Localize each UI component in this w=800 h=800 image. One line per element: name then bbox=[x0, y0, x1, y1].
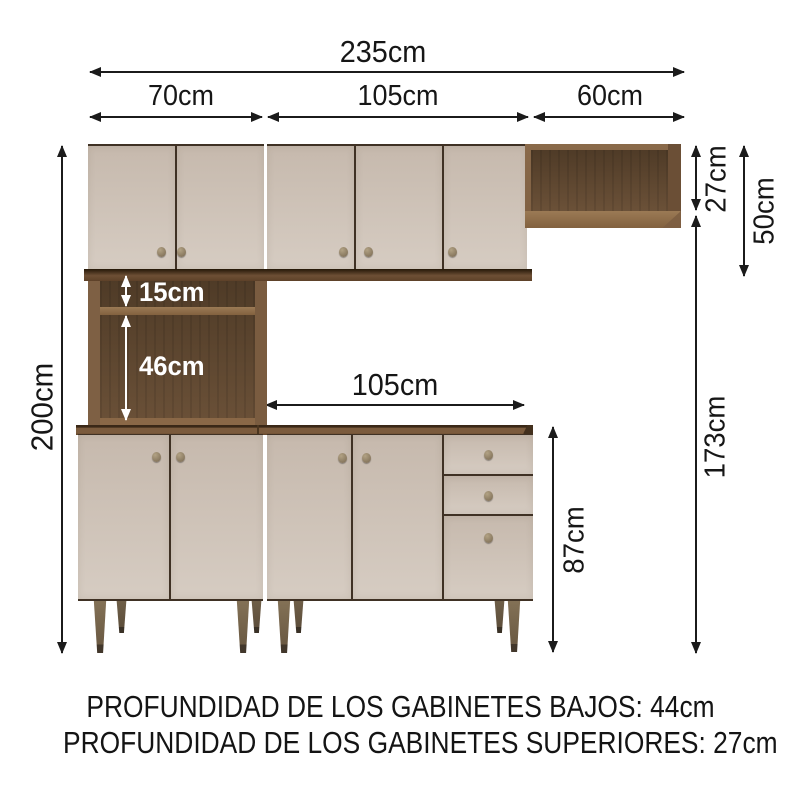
footer-depth-note-lower: PROFUNDIDAD DE LOS GABINETES BAJOS: 44cm bbox=[0, 690, 800, 724]
dimension-arrow-wall-shelf-height bbox=[695, 146, 697, 210]
upper-middle-cabinet-bottom-board bbox=[266, 269, 532, 281]
dimension-label-wall-shelf-width: 60cm bbox=[564, 82, 657, 111]
cabinet-leg bbox=[277, 601, 291, 653]
dimension-arrow-base-cabinet-height bbox=[552, 427, 554, 652]
hutch-right-panel bbox=[255, 281, 267, 426]
cabinet-leg bbox=[116, 601, 127, 633]
cabinet-leg bbox=[494, 601, 505, 633]
drawer-knob bbox=[484, 491, 493, 501]
door-knob bbox=[448, 247, 457, 257]
door-knob bbox=[338, 453, 347, 463]
wall-open-shelf bbox=[525, 144, 681, 228]
wall-open-shelf-side-panel bbox=[668, 144, 681, 212]
dimension-label-base-cabinet-height: 87cm bbox=[561, 506, 590, 573]
cabinet-leg bbox=[93, 601, 107, 653]
dimension-label-upper-cabinet-height: 50cm bbox=[751, 177, 780, 244]
dimension-label-total-height: 200cm bbox=[27, 363, 58, 451]
upper-middle-cabinet bbox=[267, 144, 527, 269]
base-left-cabinet-door-right bbox=[171, 435, 263, 599]
door-knob bbox=[362, 453, 371, 463]
door-knob bbox=[157, 247, 166, 257]
kitchen-cabinet-dimension-diagram: 235cm 70cm 105cm 60cm 200cm 27cm 50cm 17… bbox=[0, 0, 800, 800]
hutch-left-panel bbox=[88, 281, 100, 426]
dimension-arrow-total-height bbox=[61, 146, 63, 653]
upper-left-cabinet-door-right bbox=[177, 146, 264, 269]
dimension-arrow-total-width bbox=[90, 71, 684, 73]
dimension-label-upper-middle-width: 105cm bbox=[350, 82, 447, 111]
hutch-shelf-board bbox=[100, 307, 255, 315]
dimension-arrow-wall-shelf-to-floor bbox=[695, 216, 697, 653]
drawer-knob bbox=[484, 450, 493, 460]
door-knob bbox=[364, 247, 373, 257]
dimension-label-niche-upper: 15cm bbox=[139, 279, 205, 306]
dimension-label-counter-width: 105cm bbox=[347, 369, 444, 400]
door-knob bbox=[152, 452, 161, 462]
base-left-cabinet bbox=[78, 434, 263, 601]
drawer-knob bbox=[484, 533, 493, 543]
dimension-arrow-niche-lower bbox=[125, 316, 127, 420]
cabinet-leg bbox=[236, 601, 250, 653]
dimension-arrow-upper-cabinet-height bbox=[743, 146, 745, 276]
door-knob bbox=[339, 247, 348, 257]
dimension-label-upper-left-width: 70cm bbox=[135, 82, 228, 111]
footer-depth-note-lower-text: PROFUNDIDAD DE LOS GABINETES BAJOS: 44cm bbox=[86, 690, 714, 724]
dimension-arrow-wall-shelf-width bbox=[534, 116, 684, 118]
door-knob bbox=[176, 452, 185, 462]
dimension-arrow-counter-width bbox=[266, 404, 524, 406]
dimension-arrow-upper-left-width bbox=[90, 116, 262, 118]
footer-depth-note-upper: PROFUNDIDAD DE LOS GABINETES SUPERIORES:… bbox=[0, 726, 800, 760]
footer-depth-note-upper-text: PROFUNDIDAD DE LOS GABINETES SUPERIORES:… bbox=[63, 726, 778, 760]
dimension-label-niche-lower: 46cm bbox=[139, 353, 205, 380]
dimension-label-total-width: 235cm bbox=[337, 36, 430, 67]
cabinet-leg bbox=[293, 601, 304, 633]
wall-open-shelf-bottom-board bbox=[525, 211, 681, 228]
dimension-arrow-upper-middle-width bbox=[268, 116, 528, 118]
cabinet-leg bbox=[251, 601, 262, 633]
door-knob bbox=[177, 247, 186, 257]
dimension-label-wall-shelf-to-floor: 173cm bbox=[702, 396, 731, 479]
dimension-label-wall-shelf-height: 27cm bbox=[703, 145, 732, 212]
dimension-arrow-niche-upper bbox=[125, 276, 127, 306]
drawer-bottom bbox=[444, 516, 533, 599]
base-right-cabinet bbox=[267, 434, 533, 601]
wall-open-shelf-interior bbox=[531, 150, 668, 211]
upper-left-cabinet bbox=[88, 144, 264, 269]
cabinet-leg bbox=[507, 601, 521, 652]
